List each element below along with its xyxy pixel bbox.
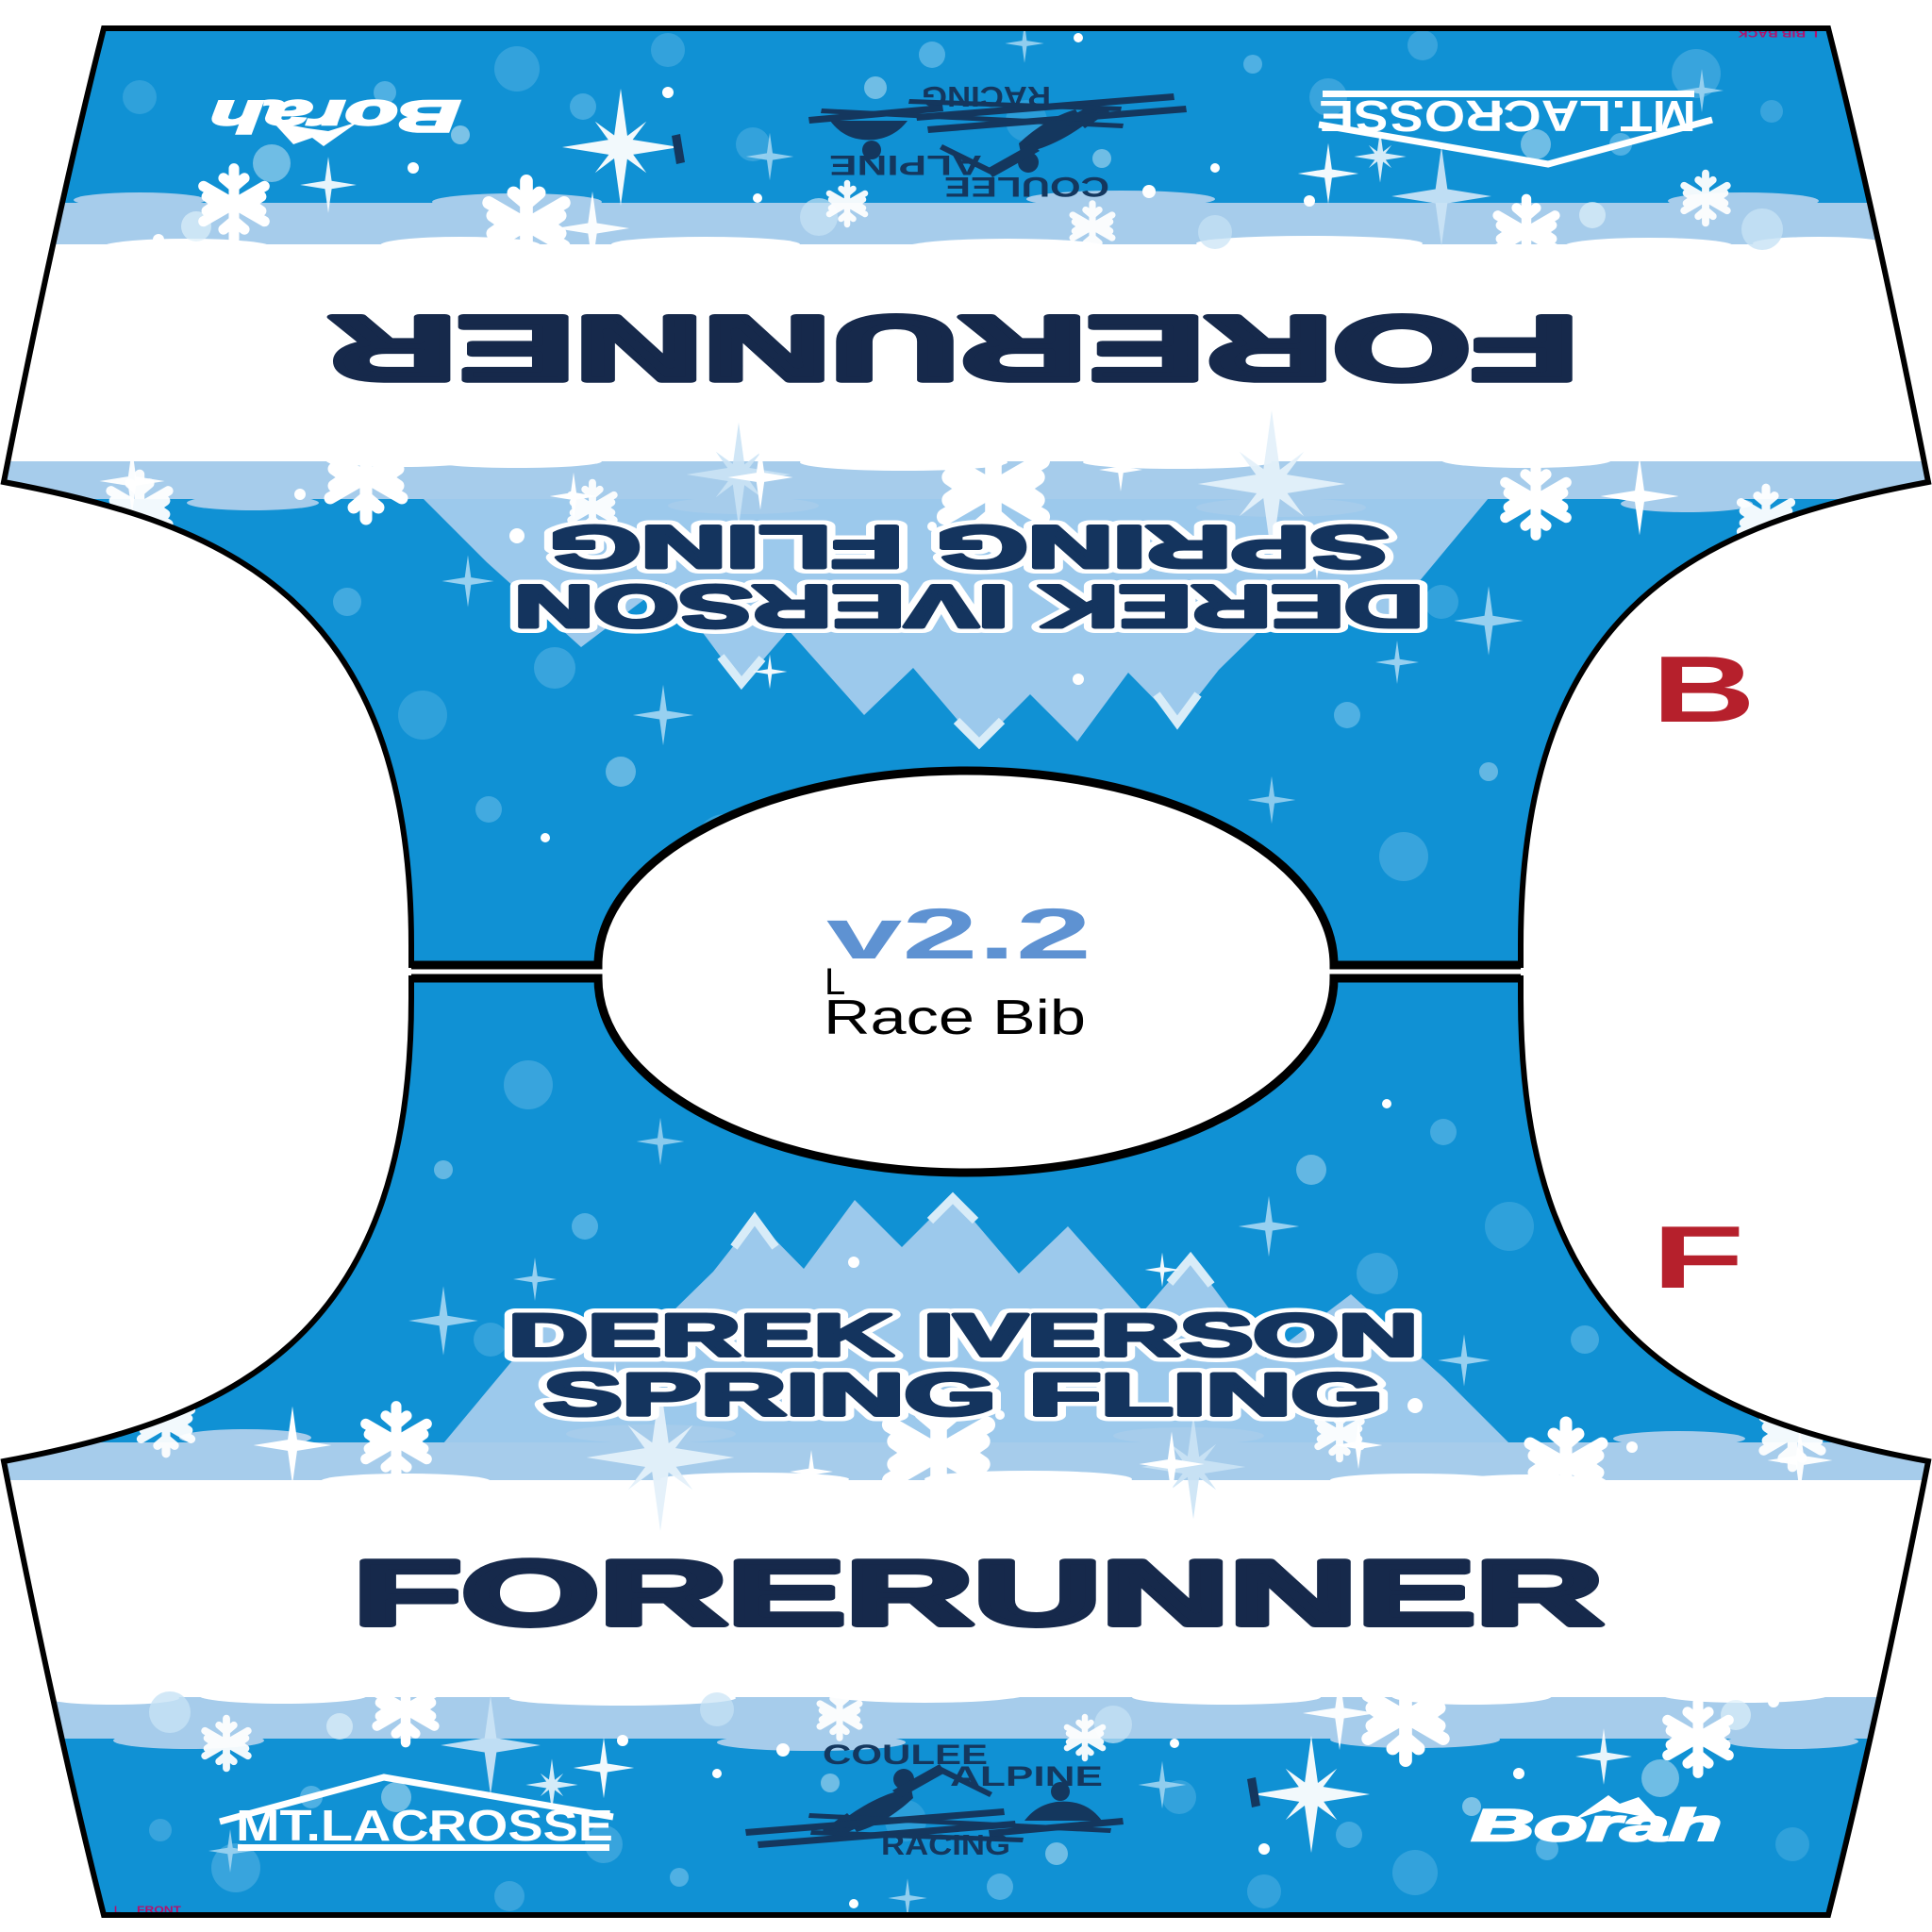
svg-text:v2.2: v2.2: [826, 894, 1091, 974]
svg-text:SPRING FLING: SPRING FLING: [549, 513, 1389, 579]
svg-text:Borah: Borah: [1472, 1800, 1722, 1850]
svg-text:F: F: [1652, 1207, 1744, 1307]
svg-text:MT.LACROSSE: MT.LACROSSE: [1319, 92, 1696, 141]
svg-text:DEREK IVERSON: DEREK IVERSON: [514, 573, 1424, 639]
svg-text:FORERUNNER: FORERUNNER: [329, 297, 1579, 400]
svg-text:Race Bib: Race Bib: [824, 991, 1086, 1045]
svg-text:B: B: [1652, 638, 1756, 742]
svg-text:MT.LACROSSE: MT.LACROSSE: [236, 1801, 613, 1850]
svg-text:DEREK IVERSON: DEREK IVERSON: [508, 1303, 1418, 1369]
svg-text:Borah: Borah: [210, 92, 460, 142]
svg-text:FORERUNNER: FORERUNNER: [354, 1541, 1604, 1644]
svg-text:SPRING FLING: SPRING FLING: [543, 1362, 1383, 1428]
